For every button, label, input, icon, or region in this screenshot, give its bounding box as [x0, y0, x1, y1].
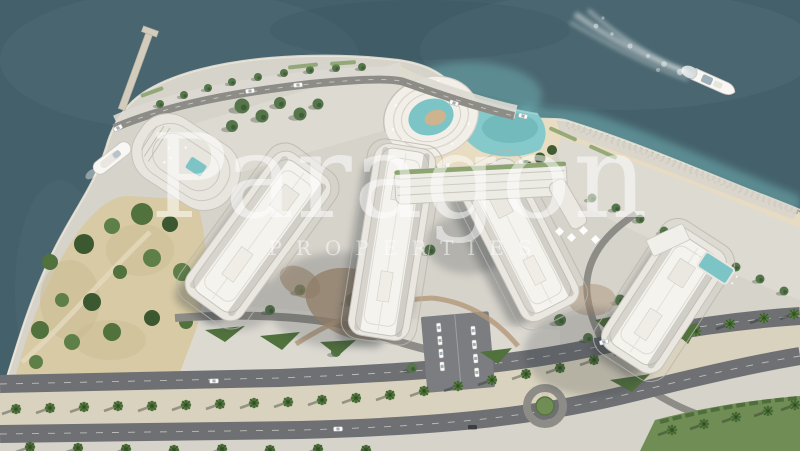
aerial-render: Paragon PROPERTIES: [0, 0, 800, 451]
scene-canvas: [0, 0, 800, 451]
